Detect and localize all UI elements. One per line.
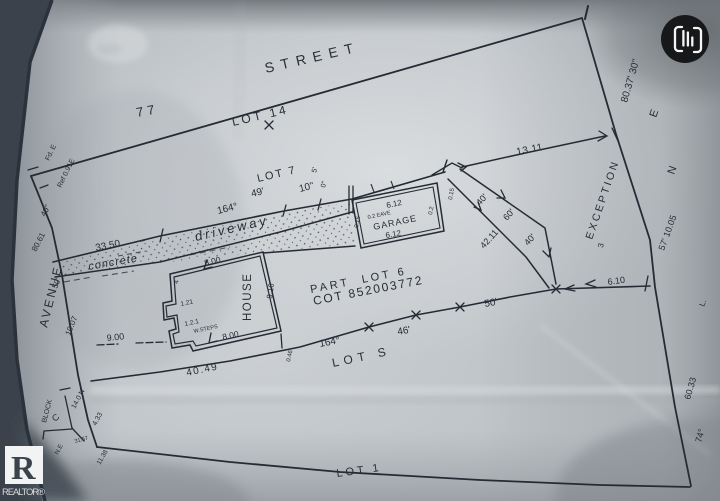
svg-text:HOUSE: HOUSE [242, 273, 254, 321]
svg-text:R: R [11, 450, 36, 487]
svg-text:REALTOR®: REALTOR® [2, 487, 45, 498]
svg-text:9.00: 9.00 [106, 331, 124, 343]
